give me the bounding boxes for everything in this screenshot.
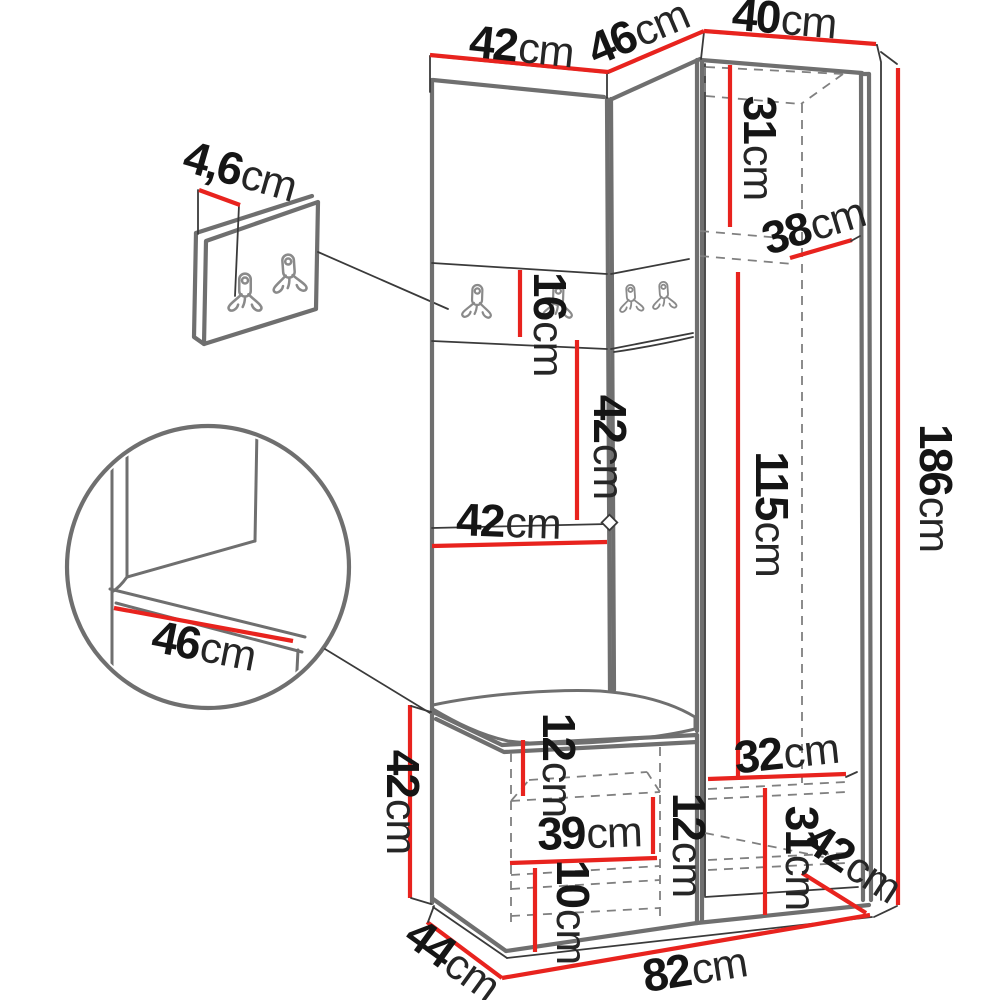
dim-right-inner-height: 115cm bbox=[746, 451, 798, 577]
coat-hook-icon bbox=[462, 285, 492, 318]
dim-shoe-space-width: 32cm bbox=[732, 721, 841, 784]
extension-line bbox=[881, 52, 897, 64]
dim-right-upper-inner-height: 31cm bbox=[734, 96, 786, 201]
dim-top-left-width: 42cm bbox=[467, 15, 576, 78]
extension-line bbox=[411, 898, 431, 904]
dim-panel-thickness: 4,6cm bbox=[178, 130, 303, 212]
diagram-canvas: 4,6cm 46cm bbox=[0, 0, 1000, 1000]
extension-line bbox=[846, 772, 857, 777]
bench-corner-detail: 46cm bbox=[67, 426, 430, 713]
furniture-dimension-diagram: 4,6cm 46cm bbox=[0, 0, 1000, 1000]
dim-seat-thickness: 12cm bbox=[533, 713, 585, 818]
wall-hook-panel: 4,6cm bbox=[178, 130, 448, 344]
coat-hook-icon bbox=[651, 281, 676, 309]
dim-bench-inner-width: 39cm bbox=[536, 804, 642, 860]
dim-top-corner-width: 46cm bbox=[579, 0, 696, 76]
dim-coat-space-width: 42cm bbox=[455, 493, 561, 549]
dim-top-right-width: 40cm bbox=[730, 0, 839, 49]
dim-bench-height: 42cm bbox=[377, 750, 429, 855]
dim-hook-strip-height: 16cm bbox=[524, 272, 576, 377]
coat-hook-icon bbox=[618, 284, 643, 312]
leader-line bbox=[325, 649, 430, 713]
dim-total-height: 186cm bbox=[910, 424, 962, 552]
dim-bench-lower-height: 10cm bbox=[547, 860, 599, 965]
dim-bench-shelf-height: 12cm bbox=[663, 793, 715, 898]
leader-line bbox=[318, 252, 448, 309]
dimension-labels: 42cm 46cm 40cm 31cm 38cm 16cm 42cm 42cm … bbox=[377, 0, 962, 1000]
dim-coat-space-height: 42cm bbox=[584, 395, 636, 500]
